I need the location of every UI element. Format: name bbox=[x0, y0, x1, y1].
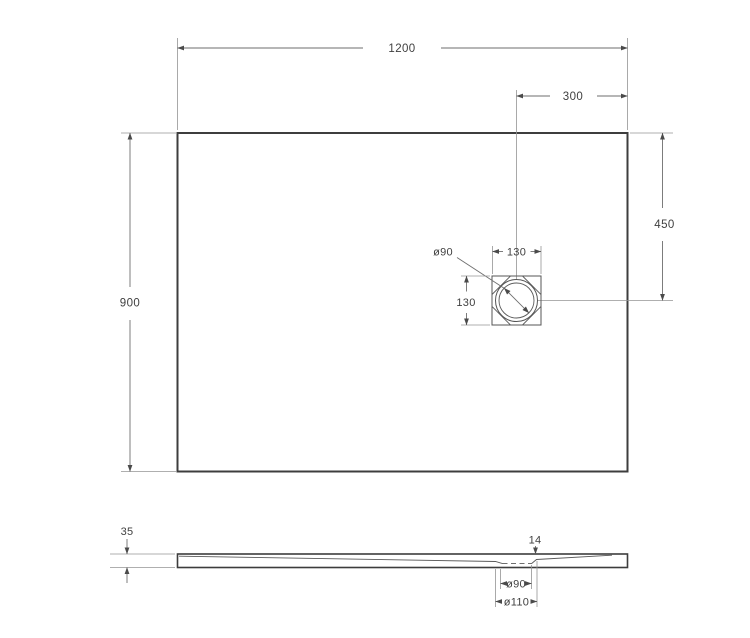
dimension-edge-thickness-35: 35 bbox=[110, 526, 175, 583]
dimension-drain-hole-diameter-90: ø90 bbox=[501, 579, 532, 591]
dimension-value: 900 bbox=[120, 298, 140, 310]
dimension-value: ø90 bbox=[506, 579, 526, 591]
dimension-value: 35 bbox=[121, 526, 134, 538]
dimension-width-1200: 1200 bbox=[178, 38, 628, 130]
tray-outline-top-view bbox=[178, 133, 628, 472]
dimension-drain-offset-300: 300 bbox=[517, 90, 628, 279]
dimension-value: 450 bbox=[654, 219, 674, 231]
tray-surface-slope-right bbox=[532, 555, 613, 563]
tray-surface-slope-left bbox=[179, 556, 503, 563]
dimension-drain-offset-450: 450 bbox=[538, 133, 675, 301]
side-view: 35 14 ø90 ø110 bbox=[110, 526, 628, 609]
top-view: 1200 300 900 450 bbox=[120, 38, 675, 472]
dimension-value: 300 bbox=[563, 91, 583, 103]
dimension-value: 1200 bbox=[388, 43, 415, 55]
dimension-drain-thickness-14: 14 bbox=[529, 535, 542, 555]
technical-drawing-canvas: 1200 300 900 450 bbox=[0, 0, 750, 638]
drain-diameter-line bbox=[504, 288, 529, 313]
dimension-value: 14 bbox=[529, 535, 542, 547]
drain-diameter-label: ø90 bbox=[433, 247, 453, 259]
dimension-drain-frame-height-130: 130 bbox=[456, 276, 490, 325]
dimension-drain-recess-diameter-110: ø110 bbox=[496, 597, 538, 609]
dimension-value: 130 bbox=[456, 297, 475, 309]
dimension-height-900: 900 bbox=[120, 133, 176, 472]
dimension-value: ø110 bbox=[504, 597, 529, 609]
tray-profile-outline bbox=[178, 554, 628, 568]
leader-line bbox=[457, 258, 505, 289]
dimension-value: 130 bbox=[507, 247, 526, 259]
shower-tray-drawing: 1200 300 900 450 bbox=[0, 0, 750, 638]
